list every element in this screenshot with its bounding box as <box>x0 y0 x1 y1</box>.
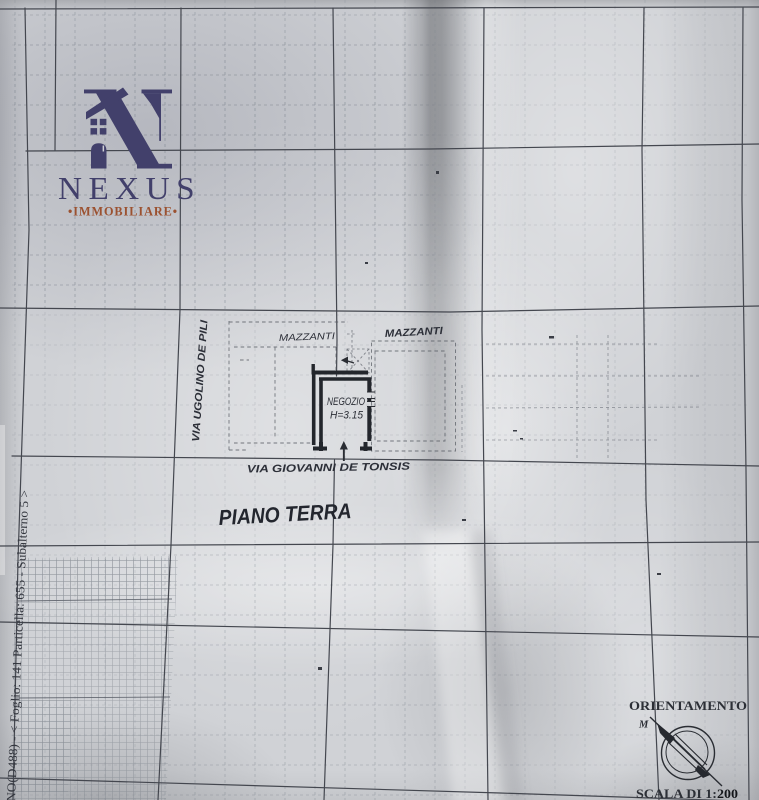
svg-text:SCALA DI 1:200: SCALA DI 1:200 <box>636 787 738 800</box>
svg-text:M: M <box>638 720 649 731</box>
svg-text:H=3.15: H=3.15 <box>330 410 364 422</box>
svg-text:ORIENTAMENTO: ORIENTAMENTO <box>629 698 747 713</box>
svg-text:MAZZANTI: MAZZANTI <box>279 331 336 344</box>
svg-text:•IMMOBILIARE•: •IMMOBILIARE• <box>68 204 178 219</box>
svg-text:NEXUS: NEXUS <box>58 170 201 206</box>
svg-text:NEGOZIO: NEGOZIO <box>327 396 365 408</box>
